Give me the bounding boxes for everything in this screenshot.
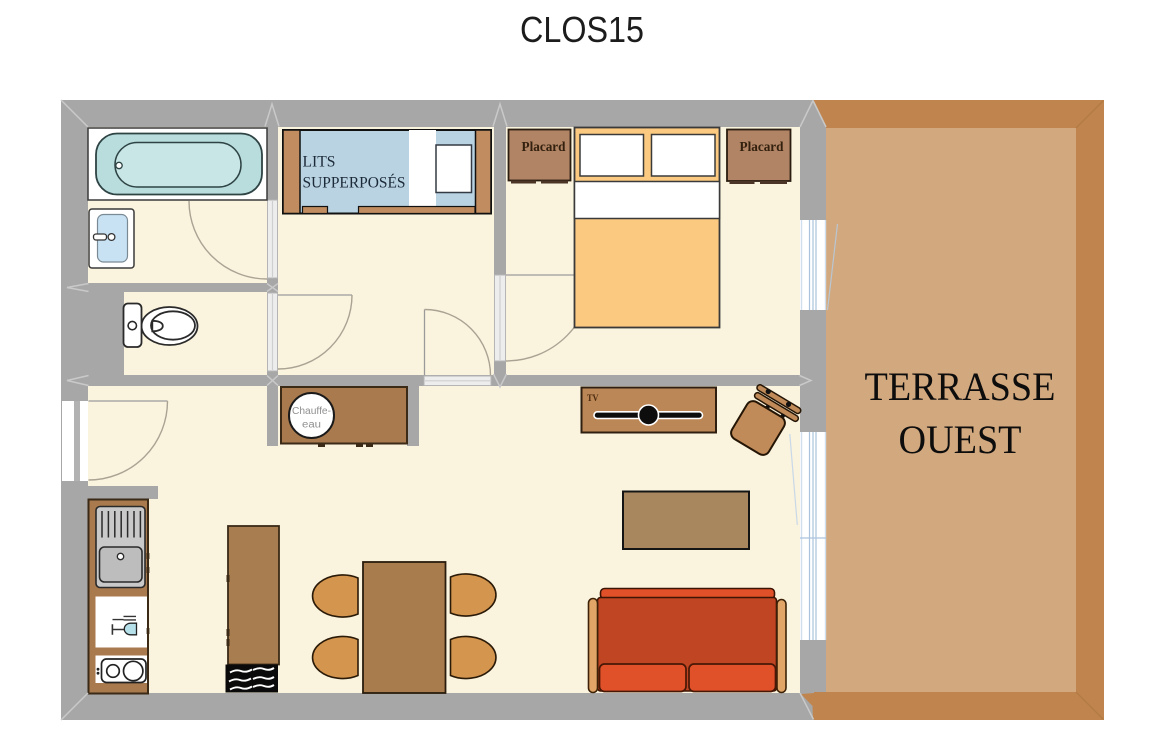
- svg-text:LITS: LITS: [303, 154, 336, 171]
- svg-text:Chauffe-: Chauffe-: [292, 406, 331, 417]
- svg-text:Placard: Placard: [740, 140, 784, 155]
- svg-text:SUPPERPOSÉS: SUPPERPOSÉS: [303, 173, 406, 192]
- svg-text:TERRASSE: TERRASSE: [865, 364, 1056, 409]
- svg-text:TV: TV: [587, 393, 599, 403]
- svg-text:OUEST: OUEST: [899, 417, 1022, 462]
- svg-text:CLOS15: CLOS15: [520, 9, 644, 50]
- svg-text:Placard: Placard: [522, 140, 566, 155]
- svg-text:eau: eau: [302, 420, 321, 431]
